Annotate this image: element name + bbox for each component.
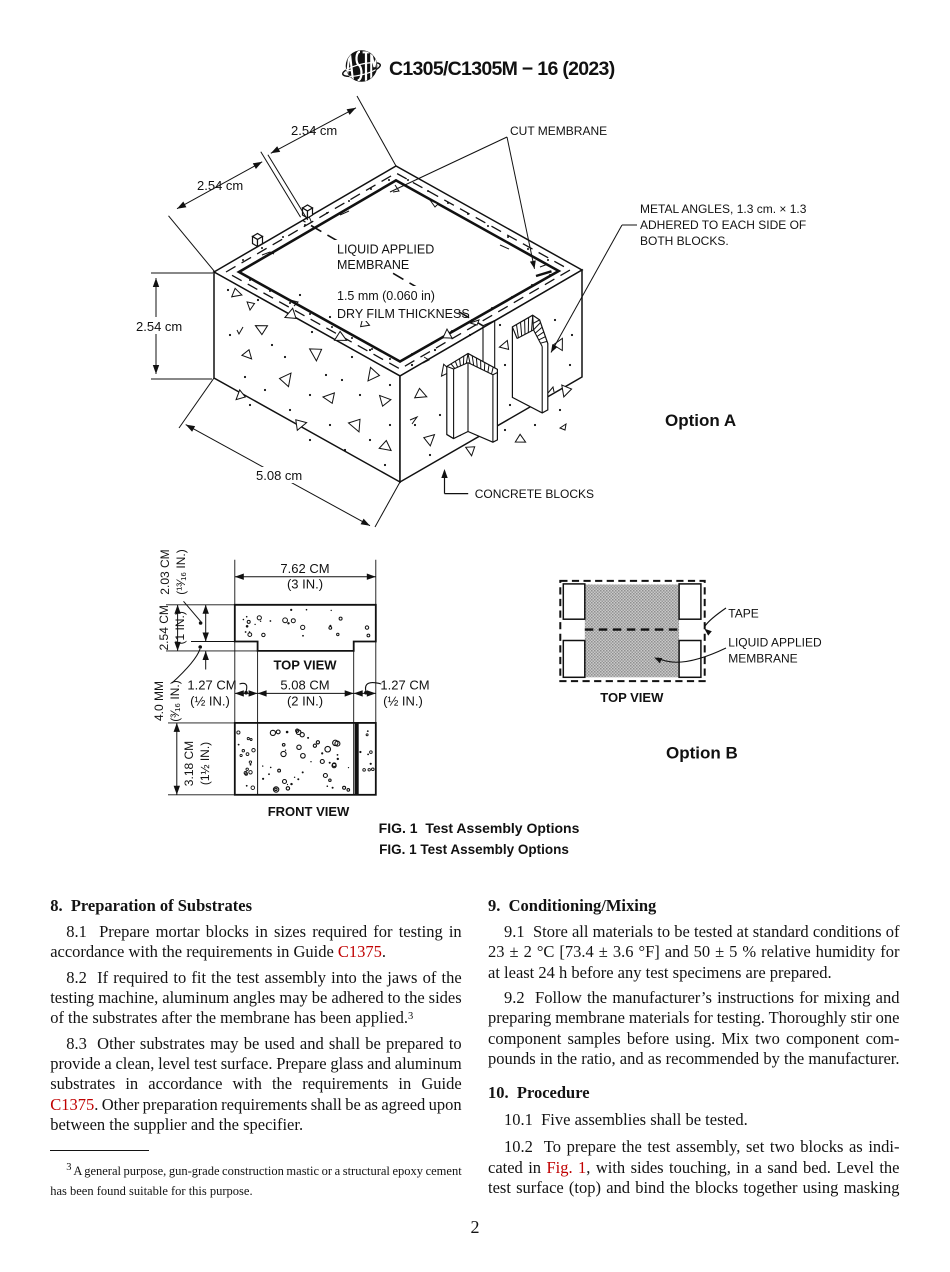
svg-text:2.54 cm: 2.54 cm <box>136 319 182 334</box>
svg-text:CUT MEMBRANE: CUT MEMBRANE <box>510 124 607 138</box>
svg-text:FRONT VIEW: FRONT VIEW <box>268 804 350 819</box>
svg-text:1.27 CM: 1.27 CM <box>187 678 236 693</box>
svg-text:2.54 cm: 2.54 cm <box>197 178 243 193</box>
svg-text:1.5 mm (0.060 in): 1.5 mm (0.060 in) <box>337 289 435 303</box>
svg-text:LIQUID APPLIED: LIQUID APPLIED <box>728 636 822 650</box>
svg-text:2.54 CM: 2.54 CM <box>157 605 171 650</box>
svg-text:MEMBRANE: MEMBRANE <box>728 652 797 666</box>
svg-text:(1 IN.): (1 IN.) <box>173 611 187 644</box>
svg-text:7.62 CM: 7.62 CM <box>280 561 329 576</box>
svg-text:CONCRETE BLOCKS: CONCRETE BLOCKS <box>475 487 594 501</box>
svg-text:(³⁄₁₆ IN.): (³⁄₁₆ IN.) <box>168 680 182 722</box>
svg-text:(½ IN.): (½ IN.) <box>190 694 230 709</box>
svg-text:5.08 cm: 5.08 cm <box>256 468 302 483</box>
svg-text:(1½ IN.): (1½ IN.) <box>198 742 212 785</box>
svg-text:(¹³⁄₁₆ IN.): (¹³⁄₁₆ IN.) <box>174 549 188 595</box>
svg-text:LIQUID APPLIED: LIQUID APPLIED <box>337 243 434 257</box>
svg-text:Option A: Option A <box>665 411 736 430</box>
svg-text:5.08 CM: 5.08 CM <box>280 678 329 693</box>
svg-text:(2 IN.): (2 IN.) <box>287 694 323 709</box>
svg-text:4.0 MM: 4.0 MM <box>152 681 166 721</box>
svg-text:3.18 CM: 3.18 CM <box>182 741 196 786</box>
svg-text:(3 IN.): (3 IN.) <box>287 577 323 592</box>
svg-text:ADHERED TO EACH SIDE OF: ADHERED TO EACH SIDE OF <box>640 218 806 232</box>
svg-text:BOTH BLOCKS.: BOTH BLOCKS. <box>640 234 729 248</box>
svg-text:TOP VIEW: TOP VIEW <box>600 690 664 705</box>
svg-text:(½ IN.): (½ IN.) <box>383 694 423 709</box>
svg-text:DRY FILM THICKNESS: DRY FILM THICKNESS <box>337 307 470 321</box>
svg-text:TAPE: TAPE <box>728 607 758 621</box>
svg-text:2.03 CM: 2.03 CM <box>158 549 172 594</box>
svg-text:TOP VIEW: TOP VIEW <box>273 658 337 673</box>
svg-text:2.54 cm: 2.54 cm <box>291 123 337 138</box>
svg-text:METAL ANGLES, 1.3 cm. × 1.3: METAL ANGLES, 1.3 cm. × 1.3 <box>640 202 807 216</box>
svg-text:MEMBRANE: MEMBRANE <box>337 258 409 272</box>
svg-text:Option B: Option B <box>666 744 738 763</box>
svg-text:1.27 CM: 1.27 CM <box>380 678 429 693</box>
